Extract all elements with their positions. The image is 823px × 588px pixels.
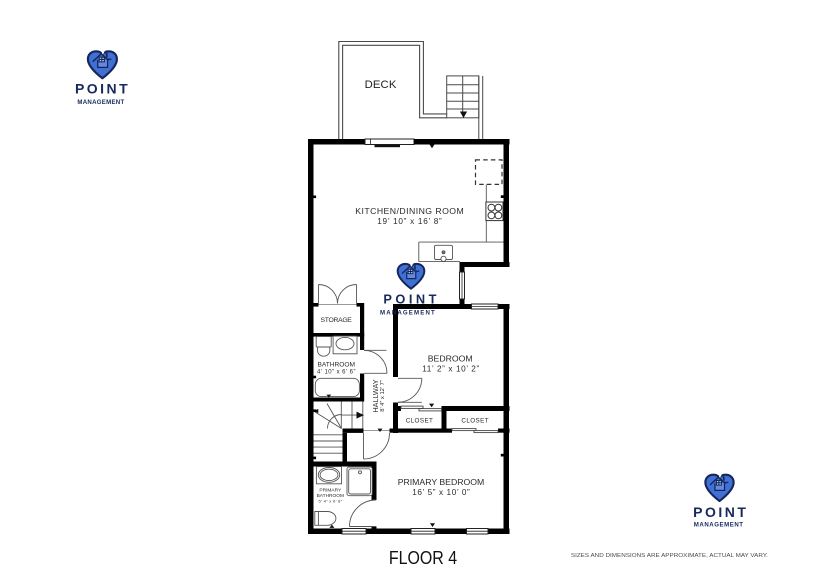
svg-text:KITCHEN/DINING ROOM: KITCHEN/DINING ROOM: [355, 206, 464, 216]
svg-text:POINT: POINT: [383, 292, 436, 307]
svg-text:MANAGEMENT: MANAGEMENT: [77, 99, 124, 106]
svg-text:BEDROOM: BEDROOM: [428, 354, 473, 364]
svg-text:HALLWAY: HALLWAY: [371, 379, 380, 412]
svg-text:STORAGE: STORAGE: [321, 317, 353, 324]
svg-text:PRIMARY: PRIMARY: [319, 487, 342, 493]
svg-text:MANAGEMENT: MANAGEMENT: [380, 310, 435, 317]
svg-text:16’ 5” x 10’ 0”: 16’ 5” x 10’ 0”: [412, 488, 470, 497]
svg-text:SIZES AND DIMENSIONS ARE APPRO: SIZES AND DIMENSIONS ARE APPROXIMATE, AC…: [571, 553, 768, 559]
svg-text:BATHROOM: BATHROOM: [317, 362, 355, 369]
svg-text:POINT: POINT: [693, 504, 746, 520]
svg-text:CLOSET: CLOSET: [406, 418, 434, 425]
svg-text:CLOSET: CLOSET: [461, 418, 489, 425]
svg-text:5’ 4” x 6’ 8”: 5’ 4” x 6’ 8”: [319, 498, 343, 503]
svg-text:DECK: DECK: [365, 79, 397, 91]
svg-text:8’ 4” x 12’ 7”: 8’ 4” x 12’ 7”: [380, 380, 386, 412]
svg-text:MANAGEMENT: MANAGEMENT: [694, 521, 743, 528]
svg-text:FLOOR 4: FLOOR 4: [389, 547, 457, 568]
svg-text:11’ 2” x 10’ 2”: 11’ 2” x 10’ 2”: [422, 364, 479, 373]
svg-text:4’ 10” x 6’ 6”: 4’ 10” x 6’ 6”: [317, 370, 356, 376]
svg-text:PRIMARY BEDROOM: PRIMARY BEDROOM: [398, 477, 485, 487]
svg-text:19’ 10” x 16’ 8”: 19’ 10” x 16’ 8”: [377, 217, 442, 226]
svg-text:POINT: POINT: [75, 81, 128, 97]
